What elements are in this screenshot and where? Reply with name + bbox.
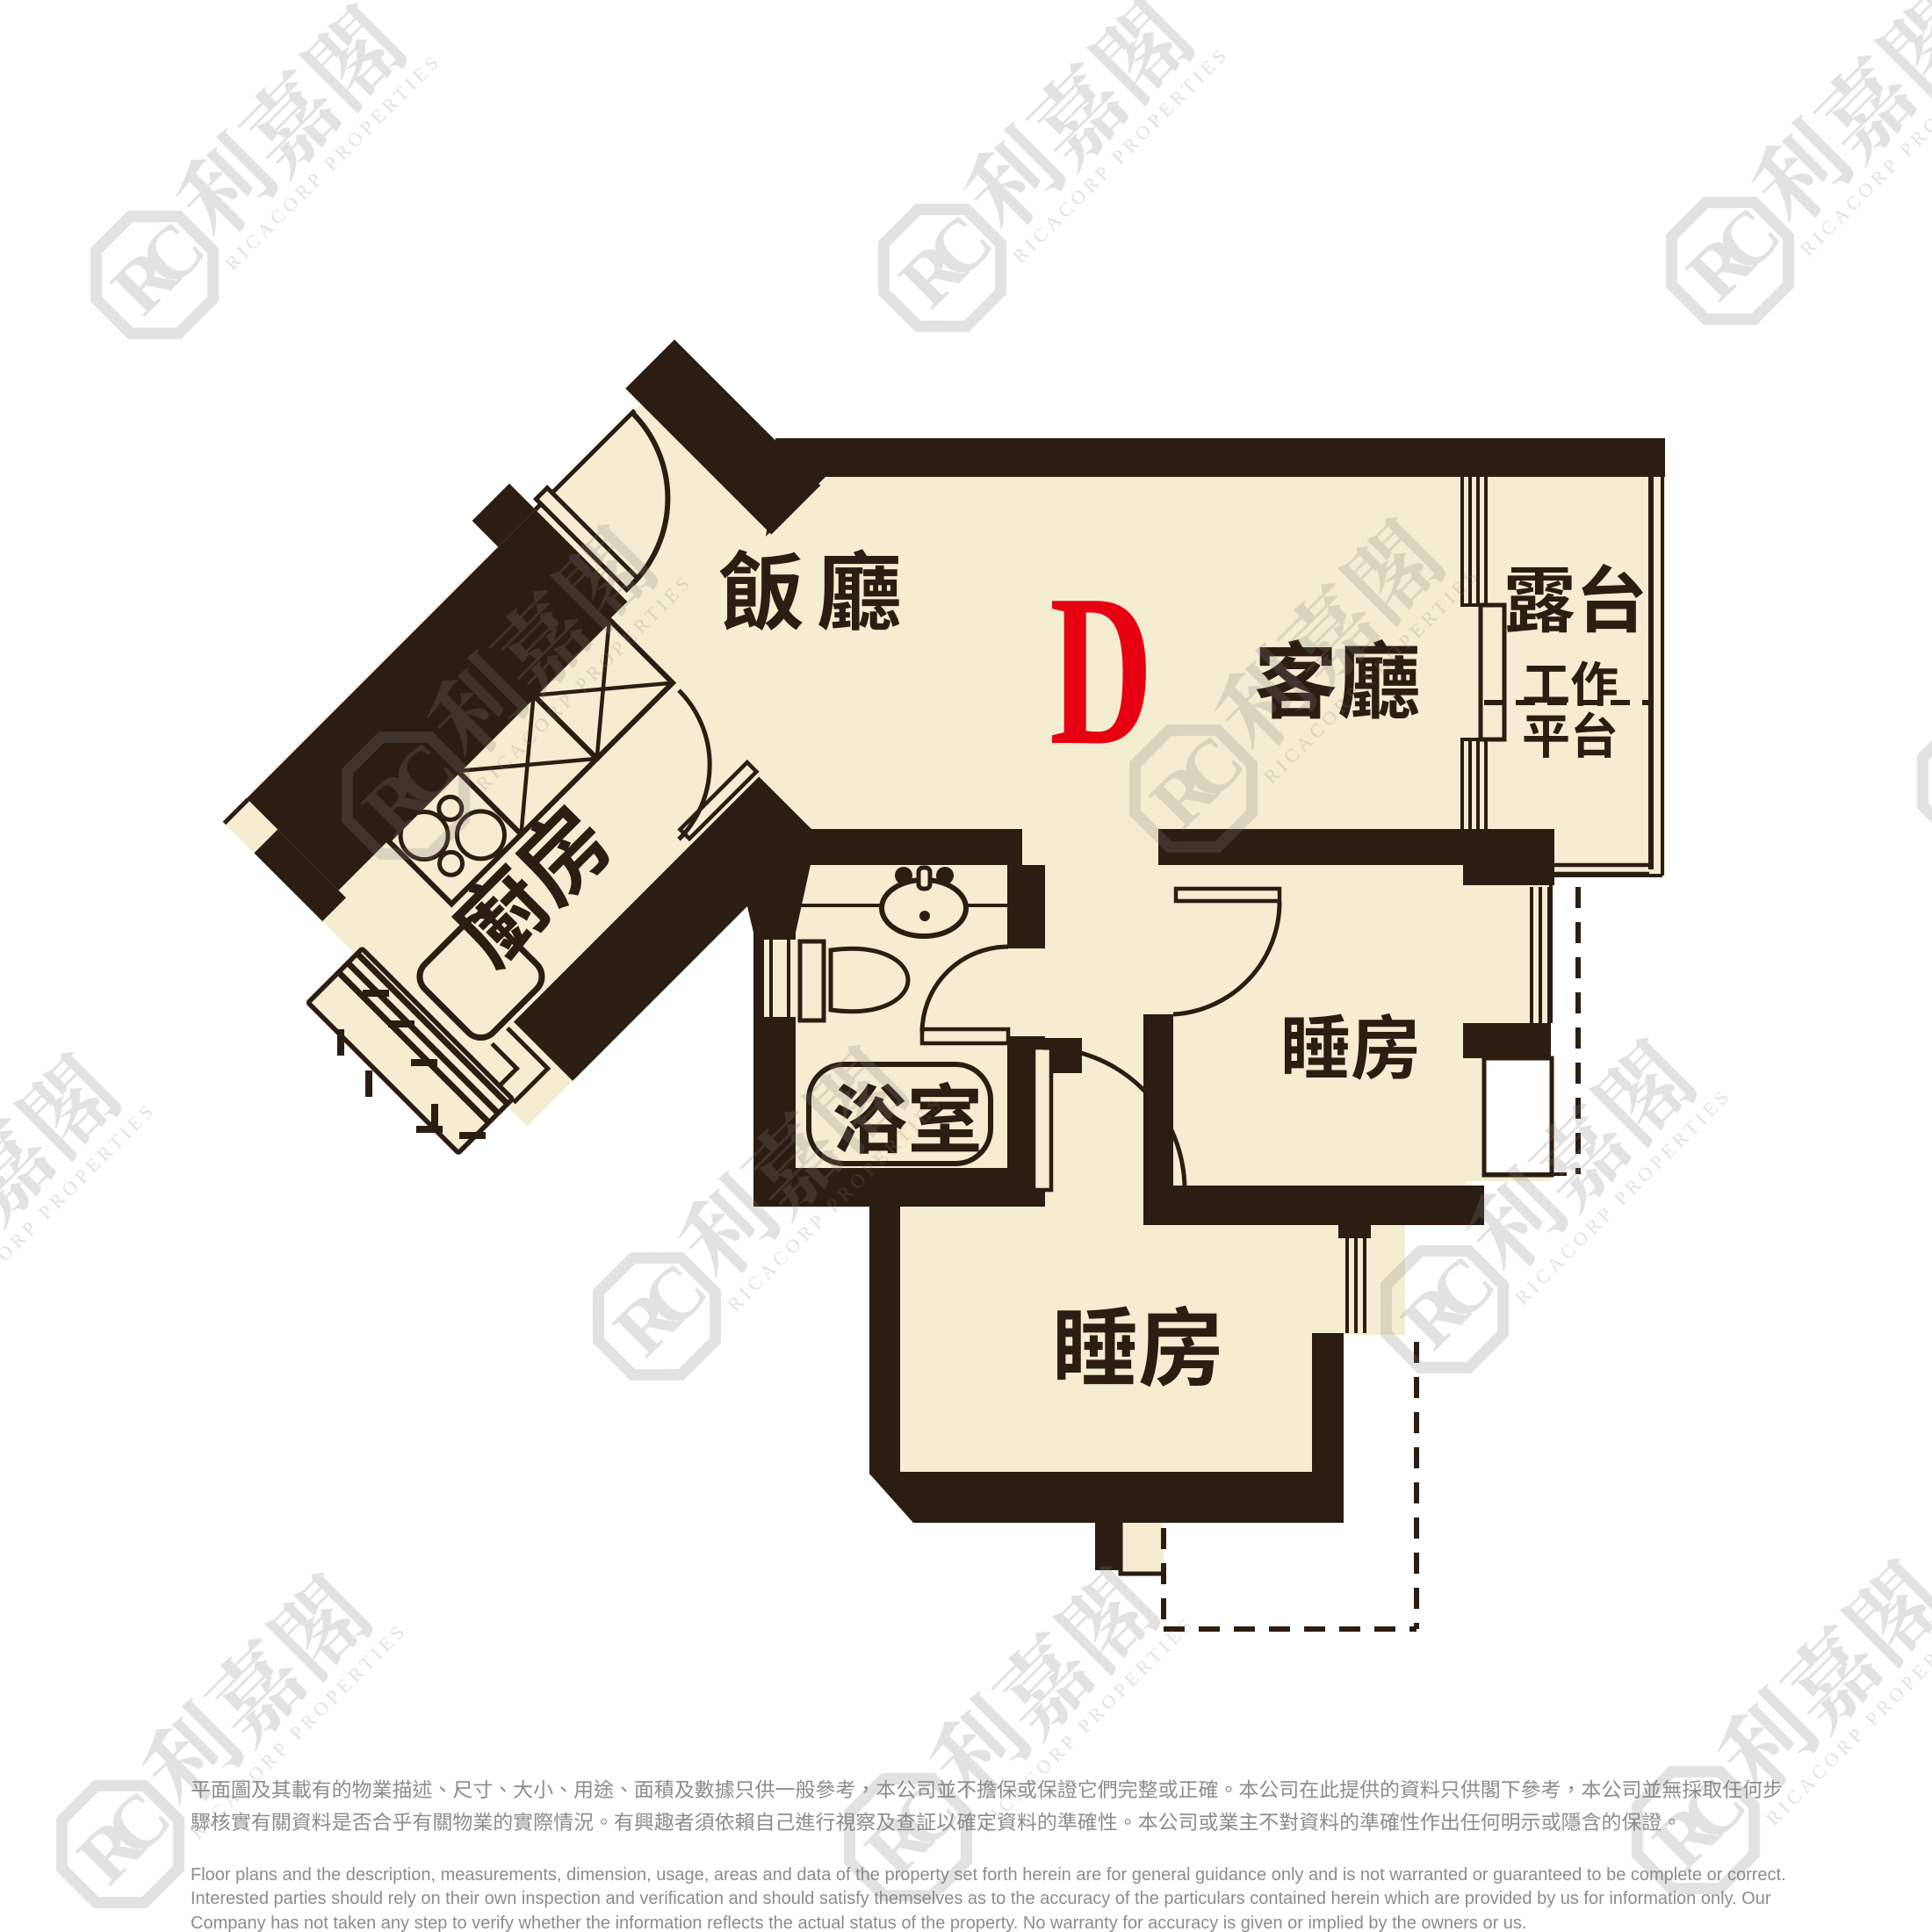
svg-text:Company has not taken any step: Company has not taken any step to verify… [191, 1914, 1526, 1932]
svg-text:Interested parties should rely: Interested parties should rely on their … [191, 1889, 1771, 1908]
svg-text:Floor plans and the descriptio: Floor plans and the description, measure… [191, 1865, 1786, 1885]
